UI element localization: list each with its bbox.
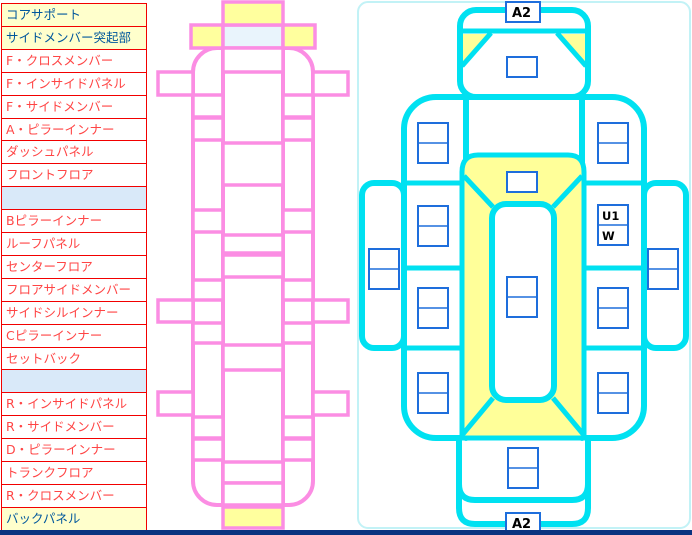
pink-back-panel (223, 507, 283, 528)
damage-input-cell[interactable] (598, 373, 628, 413)
cyan-front-section (460, 10, 588, 97)
pink-center-outrigger-left (158, 300, 193, 322)
pink-rail-cell (193, 439, 223, 460)
pink-side-member-boss-right (283, 25, 315, 48)
pink-rail-cell (283, 280, 313, 300)
pink-center-cross-1 (223, 235, 283, 253)
damage-input-cell[interactable] (598, 288, 628, 328)
pink-rail-cell (283, 439, 313, 460)
damage-code-u1: U1 (602, 209, 619, 223)
window-bottom-edge (0, 530, 692, 535)
estimate-body-parts-screen: コアサポートサイドメンバー突起部F・クロスメンバーF・インサイドパネルF・サイド… (0, 0, 692, 535)
damage-input-cell-coded[interactable]: U1 W (598, 205, 628, 245)
pink-rail-cell (283, 210, 313, 232)
damage-input-cell[interactable] (507, 277, 537, 317)
pink-rail-cell (193, 118, 223, 140)
pink-rear-cross-2 (223, 483, 283, 505)
pink-rear-outrigger-right (313, 392, 348, 415)
pink-center-outrigger-right (313, 300, 348, 322)
pink-rail-cell (283, 95, 313, 117)
pink-dash-panel (223, 143, 283, 185)
damage-input-cell[interactable] (418, 123, 448, 163)
pink-center-cross-2 (223, 255, 283, 277)
pink-rail-cell (283, 417, 313, 438)
body-diagram-canvas: U1 W A2 A2 (0, 0, 692, 535)
damage-input-cell[interactable] (418, 206, 448, 246)
pink-rail-cell (193, 95, 223, 117)
damage-code-w: W (602, 229, 615, 243)
damage-input-cell[interactable] (598, 123, 628, 163)
damage-input-cell[interactable] (369, 249, 399, 289)
front-code-text: A2 (512, 6, 531, 21)
pink-rail-cell (193, 323, 223, 343)
pink-rail-cell (283, 118, 313, 140)
pink-side-member-boss-left (191, 25, 223, 48)
pink-core-support (223, 2, 283, 25)
pink-rear-outrigger-left (158, 392, 193, 415)
pink-front-side-member-left (158, 72, 193, 95)
pink-rail-cell (193, 210, 223, 232)
damage-diagram-cyan: U1 W A2 A2 (358, 2, 690, 533)
damage-input-cell[interactable] (418, 288, 448, 328)
pink-front-side-member-right (313, 72, 348, 95)
front-code-badge[interactable]: A2 (506, 2, 540, 22)
damage-input-cell[interactable] (648, 249, 678, 289)
damage-input-cell[interactable] (507, 172, 537, 192)
damage-input-cell[interactable] (507, 57, 537, 77)
pink-rail-cell (283, 323, 313, 343)
pink-front-crossmember (223, 48, 283, 72)
pink-rear-cross-1 (223, 462, 283, 483)
damage-input-cell[interactable] (418, 373, 448, 413)
pink-rail-cell (193, 417, 223, 438)
frame-diagram-pink (158, 2, 348, 528)
pink-rail-cell (193, 280, 223, 300)
pink-side-member-boss-mid (223, 25, 283, 48)
damage-input-cell[interactable] (508, 448, 538, 488)
pink-seat-back-cross (223, 345, 283, 370)
